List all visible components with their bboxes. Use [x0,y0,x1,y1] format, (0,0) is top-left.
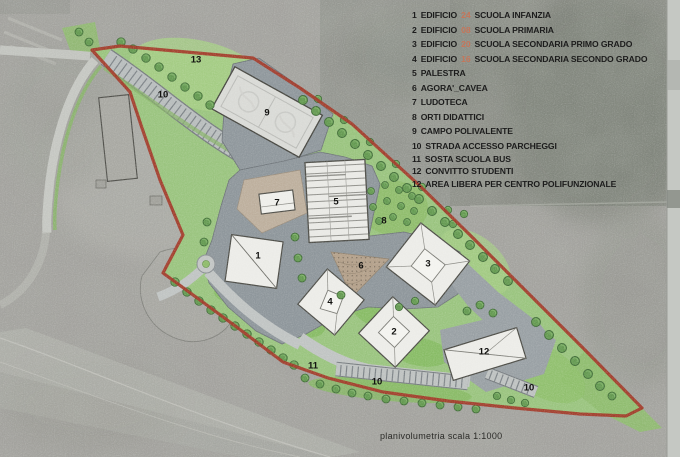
plan-label-parking-mid: 10 [372,377,383,387]
legend-item-10: 10STRADA ACCESSO PARCHEGGI [412,139,676,154]
legend-item-4: 4EDIFICIO16SCUOLA SECONDARIA SECONDO GRA… [412,52,676,67]
plan-label-area-13: 13 [191,55,202,65]
legend-item-7: 7LUDOTECA [412,95,676,110]
plan-label-orti-8: 8 [381,216,386,226]
legend-item-13: 12AREA LIBERA PER CENTRO POLIFUNZIONALE [412,178,676,190]
legend-item-6: 6AGORA'_CAVEA [412,81,676,96]
legend-item-8: 8ORTI DIDATTICI [412,110,676,125]
plan-label-building-5: 5 [333,197,338,207]
plan-label-parking-top: 10 [158,90,169,100]
legend-item-11: 11SOSTA SCUOLA BUS [412,153,676,165]
plan-label-campo-9: 9 [264,108,269,118]
plan-label-building-3: 3 [425,259,430,269]
plan-label-bus-11: 11 [308,361,318,371]
legend-item-2: 2EDIFICIO08SCUOLA PRIMARIA [412,23,676,38]
legend-item-12: 12CONVITTO STUDENTI [412,165,676,177]
plan-caption: planivolumetria scala 1:1000 [380,431,502,441]
legend-item-5: 5PALESTRA [412,66,676,81]
plan-label-building-4: 4 [327,297,332,307]
legend-item-1: 1EDIFICIO24SCUOLA INFANZIA [412,8,676,23]
site-plan-photo: 1EDIFICIO24SCUOLA INFANZIA 2EDIFICIO08SC… [0,0,680,457]
plan-label-building-7: 7 [274,198,279,208]
plan-label-parking-right: 10 [524,383,535,393]
plan-label-building-12: 12 [479,347,490,357]
plan-label-agora-6: 6 [358,261,363,271]
legend-item-9: 9CAMPO POLIVALENTE [412,124,676,139]
legend: 1EDIFICIO24SCUOLA INFANZIA 2EDIFICIO08SC… [412,8,676,190]
legend-item-3: 3EDIFICIO20SCUOLA SECONDARIA PRIMO GRADO [412,37,676,52]
plan-label-building-1: 1 [255,251,260,261]
plan-label-building-2: 2 [391,327,396,337]
